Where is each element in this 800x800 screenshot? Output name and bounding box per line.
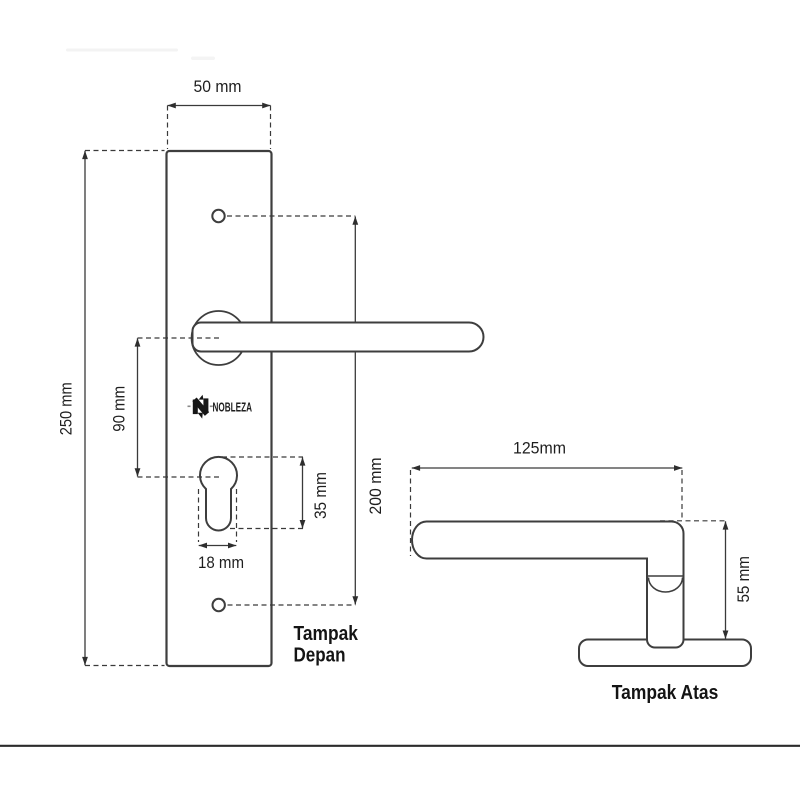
svg-text:NOBLEZA: NOBLEZA [213,401,253,415]
svg-text:Tampak Atas: Tampak Atas [612,682,719,704]
svg-text:55 mm: 55 mm [734,556,753,603]
svg-text:50 mm: 50 mm [194,77,242,96]
svg-text:125mm: 125mm [513,438,566,457]
svg-text:200 mm: 200 mm [366,458,385,515]
svg-text:250 mm: 250 mm [56,382,75,435]
svg-text:18 mm: 18 mm [198,553,244,572]
svg-text:90 mm: 90 mm [109,386,128,432]
svg-text:Tampak: Tampak [294,623,359,645]
svg-text:35 mm: 35 mm [311,472,330,519]
svg-text:Depan: Depan [294,645,346,667]
